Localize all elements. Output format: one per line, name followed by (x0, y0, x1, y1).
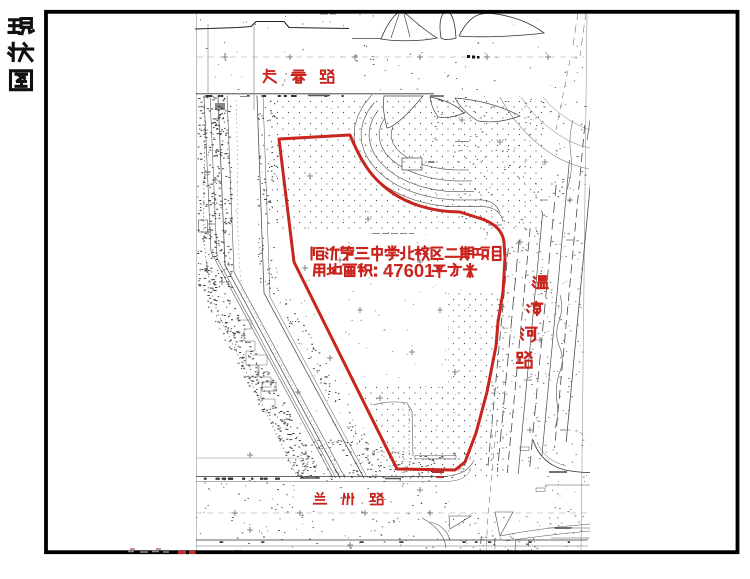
svg-text:47601: 47601 (383, 260, 434, 281)
